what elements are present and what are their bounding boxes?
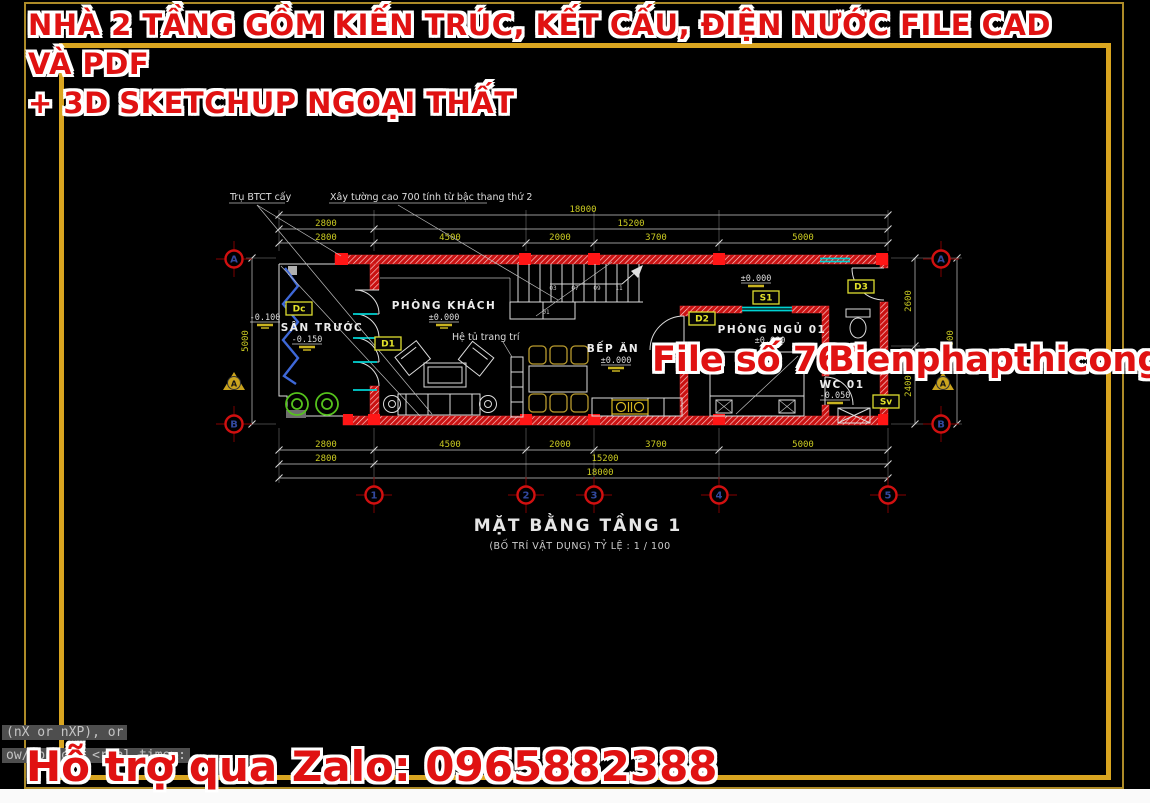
room-bedroom: PHÒNG NGỦ 01 bbox=[718, 322, 827, 336]
tag-dc: Dc bbox=[293, 305, 306, 315]
stair-step-number: 01 bbox=[542, 309, 550, 316]
level-living: ±0.000 bbox=[429, 313, 460, 323]
stair-step-number: 11 bbox=[615, 285, 623, 292]
zalo-support-text: Hỗ trợ qua Zalo: 0965882388 bbox=[26, 742, 718, 791]
tag-d1: D1 bbox=[381, 340, 395, 350]
dim-label: 3700 bbox=[645, 440, 667, 450]
dim-label: 2800 bbox=[315, 219, 337, 229]
svg-text:B: B bbox=[937, 420, 945, 431]
svg-text:A: A bbox=[230, 255, 238, 266]
grid-row-bubble-a-right: A bbox=[923, 241, 959, 277]
room-porch: SÂN TRƯỚC bbox=[281, 321, 364, 334]
dimensions-left: 5000 bbox=[241, 255, 276, 428]
kitchen-counter bbox=[592, 398, 682, 416]
svg-text:A: A bbox=[940, 380, 947, 389]
svg-text:1: 1 bbox=[371, 491, 378, 502]
level-porch-outside: -0.100 bbox=[250, 313, 281, 323]
sofa-set bbox=[384, 341, 497, 415]
dim-label: 2000 bbox=[549, 233, 571, 243]
dim-label: 2800 bbox=[315, 233, 337, 243]
dim-label: 5000 bbox=[241, 330, 251, 352]
level-wc: -0.050 bbox=[820, 391, 851, 401]
tag-sv: Sv bbox=[880, 398, 892, 408]
dim-label: 5000 bbox=[792, 233, 814, 243]
dim-label: 2800 bbox=[315, 440, 337, 450]
stair-step-number: 07 bbox=[571, 285, 579, 292]
plan-title: MẶT BẰNG TẦNG 1 bbox=[474, 512, 682, 536]
dim-label: 3700 bbox=[645, 233, 667, 243]
dimensions-top: 18000 2800 15200 2800 4500 2000 3700 500… bbox=[276, 205, 892, 251]
svg-text:3: 3 bbox=[591, 491, 598, 502]
svg-text:4: 4 bbox=[716, 491, 723, 502]
stove-icon bbox=[612, 400, 648, 414]
section-marker-left: A bbox=[223, 372, 245, 390]
plan-subtitle: (BỐ TRÍ VẬT DỤNG) TỶ LỆ : 1 / 100 bbox=[489, 539, 670, 552]
dim-label: 18000 bbox=[569, 205, 596, 215]
svg-text:2: 2 bbox=[523, 491, 530, 502]
command-line-text[interactable]: (nX or nXP), or bbox=[2, 725, 127, 740]
promo-title-line1: NHÀ 2 TẦNG GỒM KIẾN TRÚC, KẾT CẤU, ĐIỆN … bbox=[28, 6, 1098, 84]
decor-cabinet bbox=[511, 357, 523, 417]
grid-col-bubble-2: 2 bbox=[508, 477, 544, 513]
window-s1 bbox=[742, 308, 792, 311]
svg-text:A: A bbox=[231, 380, 238, 389]
promo-title: NHÀ 2 TẦNG GỒM KIẾN TRÚC, KẾT CẤU, ĐIỆN … bbox=[28, 6, 1098, 123]
room-kitchen: BẾP ĂN bbox=[587, 340, 639, 355]
level-porch: -0.150 bbox=[292, 335, 323, 345]
dim-label: 5000 bbox=[792, 440, 814, 450]
grid-row-bubble-b-left: B bbox=[216, 406, 252, 442]
note-cabinet: Hệ tủ trang trí bbox=[452, 332, 520, 343]
dim-label: 2800 bbox=[315, 454, 337, 464]
svg-text:A: A bbox=[937, 255, 945, 266]
tag-d3: D3 bbox=[854, 283, 868, 293]
note-pier: Trụ BTCT cấy bbox=[229, 192, 292, 203]
dim-label: 18000 bbox=[586, 468, 613, 478]
tag-s1: S1 bbox=[760, 294, 773, 304]
room-living: PHÒNG KHÁCH bbox=[392, 299, 497, 312]
stair-step-number: 09 bbox=[593, 285, 601, 292]
grid-col-bubble-3: 3 bbox=[576, 477, 612, 513]
dim-label: 15200 bbox=[591, 454, 618, 464]
grid-row-bubble-b-right: B bbox=[923, 406, 959, 442]
dim-label: 4500 bbox=[439, 440, 461, 450]
watermark-website: Bienphapthicong.vn bbox=[828, 340, 1150, 380]
stair-step-number: 03 bbox=[549, 285, 557, 292]
dim-label: 2000 bbox=[549, 440, 571, 450]
tag-d2: D2 bbox=[695, 315, 709, 325]
dimensions-bottom: 2800 4500 2000 3700 5000 2800 15200 1800… bbox=[276, 428, 892, 483]
plan-title-block: MẶT BẰNG TẦNG 1 (BỐ TRÍ VẬT DỤNG) TỶ LỆ … bbox=[474, 512, 682, 552]
stair-up-arrow bbox=[550, 265, 643, 284]
grid-row-bubble-a-left: A bbox=[216, 241, 252, 277]
grid-col-bubble-5: 5 bbox=[870, 477, 906, 513]
dim-label: 4500 bbox=[439, 233, 461, 243]
dim-label: 2600 bbox=[904, 290, 914, 312]
grid-col-bubble-4: 4 bbox=[701, 477, 737, 513]
grid-col-bubble-1: 1 bbox=[356, 477, 392, 513]
level-kitchen: ±0.000 bbox=[601, 356, 632, 366]
room-wc: WC 01 bbox=[819, 379, 864, 391]
level-stair-hall: ±0.000 bbox=[741, 274, 772, 284]
door-d3 bbox=[820, 259, 884, 301]
note-wall: Xây tường cao 700 tính từ bậc thang thứ … bbox=[330, 192, 532, 203]
dining-set bbox=[529, 346, 588, 412]
svg-text:5: 5 bbox=[885, 491, 892, 502]
plant-icon bbox=[286, 393, 338, 418]
svg-text:B: B bbox=[230, 420, 238, 431]
dim-label: 15200 bbox=[617, 219, 644, 229]
promo-title-line2: + 3D SKETCHUP NGOẠI THẤT bbox=[28, 84, 1098, 123]
autocad-viewport: 01 03 07 09 11 bbox=[0, 0, 1150, 803]
